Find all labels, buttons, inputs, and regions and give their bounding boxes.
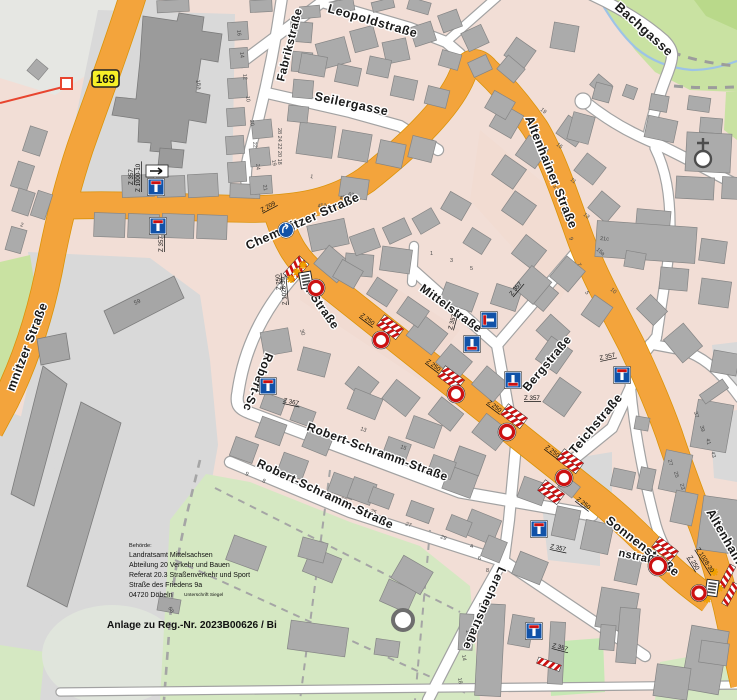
svg-text:4: 4: [470, 544, 473, 550]
svg-text:5: 5: [470, 266, 473, 272]
svg-text:28 24 22 20 18: 28 24 22 20 18: [276, 128, 282, 165]
svg-text:169: 169: [96, 74, 115, 86]
svg-text:Z 357: Z 357: [158, 236, 165, 252]
svg-text:Behörde:: Behörde:: [129, 543, 152, 549]
svg-text:21: 21: [261, 184, 268, 191]
svg-text:24: 24: [254, 164, 261, 171]
svg-text:22: 22: [251, 142, 258, 149]
svg-text:Referat 20.3 Straßenverkehr un: Referat 20.3 Straßenverkehr und Sport: [129, 572, 250, 579]
svg-text:10: 10: [244, 96, 251, 103]
svg-text:19: 19: [270, 159, 277, 166]
svg-text:1: 1: [430, 251, 433, 257]
svg-text:3: 3: [450, 258, 453, 264]
svg-text:6: 6: [478, 556, 481, 562]
svg-text:8: 8: [486, 568, 489, 574]
svg-text:Straße des Friedens 9a: Straße des Friedens 9a: [129, 582, 202, 589]
svg-text:21c: 21c: [600, 236, 610, 243]
svg-text:Z 1000-10: Z 1000-10: [135, 163, 142, 192]
svg-text:Anlage zu Reg.-Nr. 2023B00626: Anlage zu Reg.-Nr. 2023B00626 / Bi: [107, 620, 277, 631]
svg-text:14: 14: [238, 52, 245, 59]
svg-text:04720 Döbeln: 04720 Döbeln: [129, 592, 173, 599]
svg-text:14: 14: [460, 654, 467, 661]
svg-text:Landratsamt Mittelsachsen: Landratsamt Mittelsachsen: [129, 552, 213, 559]
svg-text:Unterschrift Siegel: Unterschrift Siegel: [184, 592, 223, 598]
svg-text:18: 18: [456, 677, 463, 684]
svg-text:Z 357: Z 357: [524, 395, 540, 402]
svg-text:Abteilung 20 Verkehr und Bauen: Abteilung 20 Verkehr und Bauen: [129, 562, 230, 569]
svg-text:Z 357: Z 357: [128, 169, 135, 185]
svg-text:16: 16: [235, 30, 242, 37]
svg-text:20: 20: [248, 120, 255, 127]
svg-text:12: 12: [241, 74, 248, 81]
